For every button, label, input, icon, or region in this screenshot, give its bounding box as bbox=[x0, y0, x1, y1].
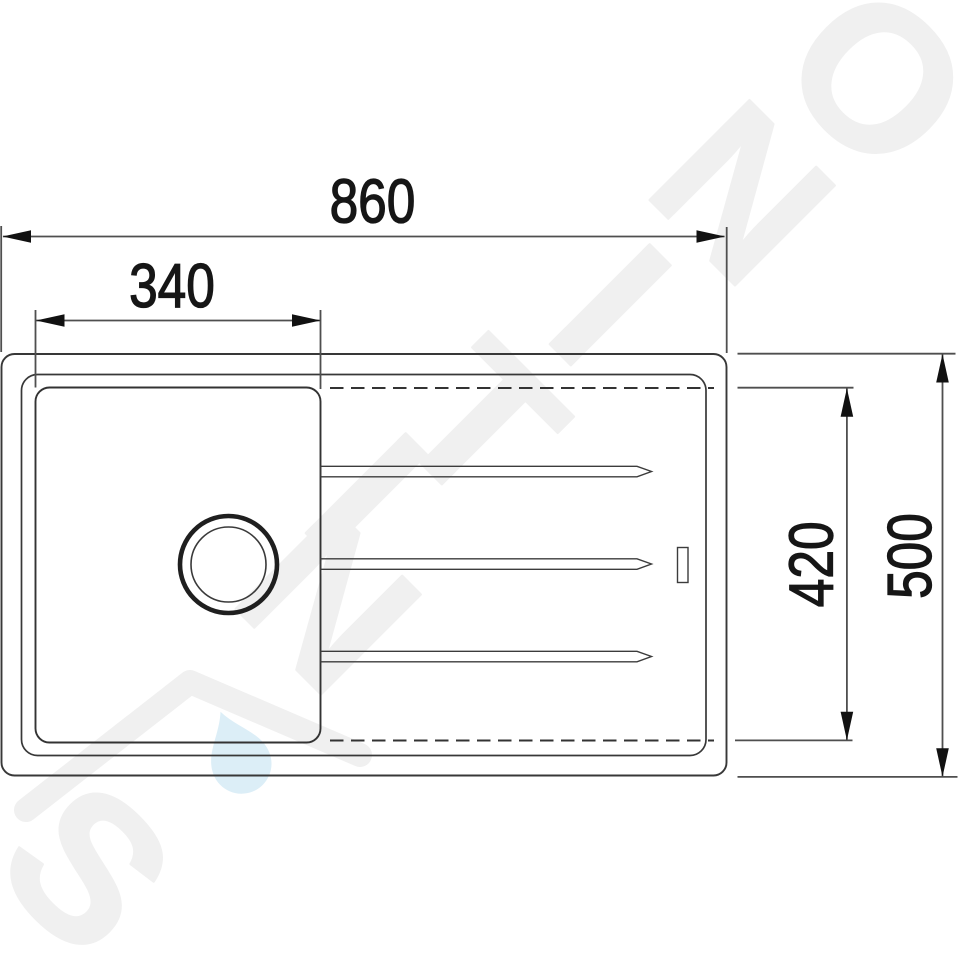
svg-text:860: 860 bbox=[330, 167, 416, 237]
svg-text:S: S bbox=[0, 738, 217, 960]
svg-text:500: 500 bbox=[876, 513, 946, 599]
svg-text:420: 420 bbox=[777, 521, 847, 607]
svg-text:340: 340 bbox=[129, 252, 215, 322]
